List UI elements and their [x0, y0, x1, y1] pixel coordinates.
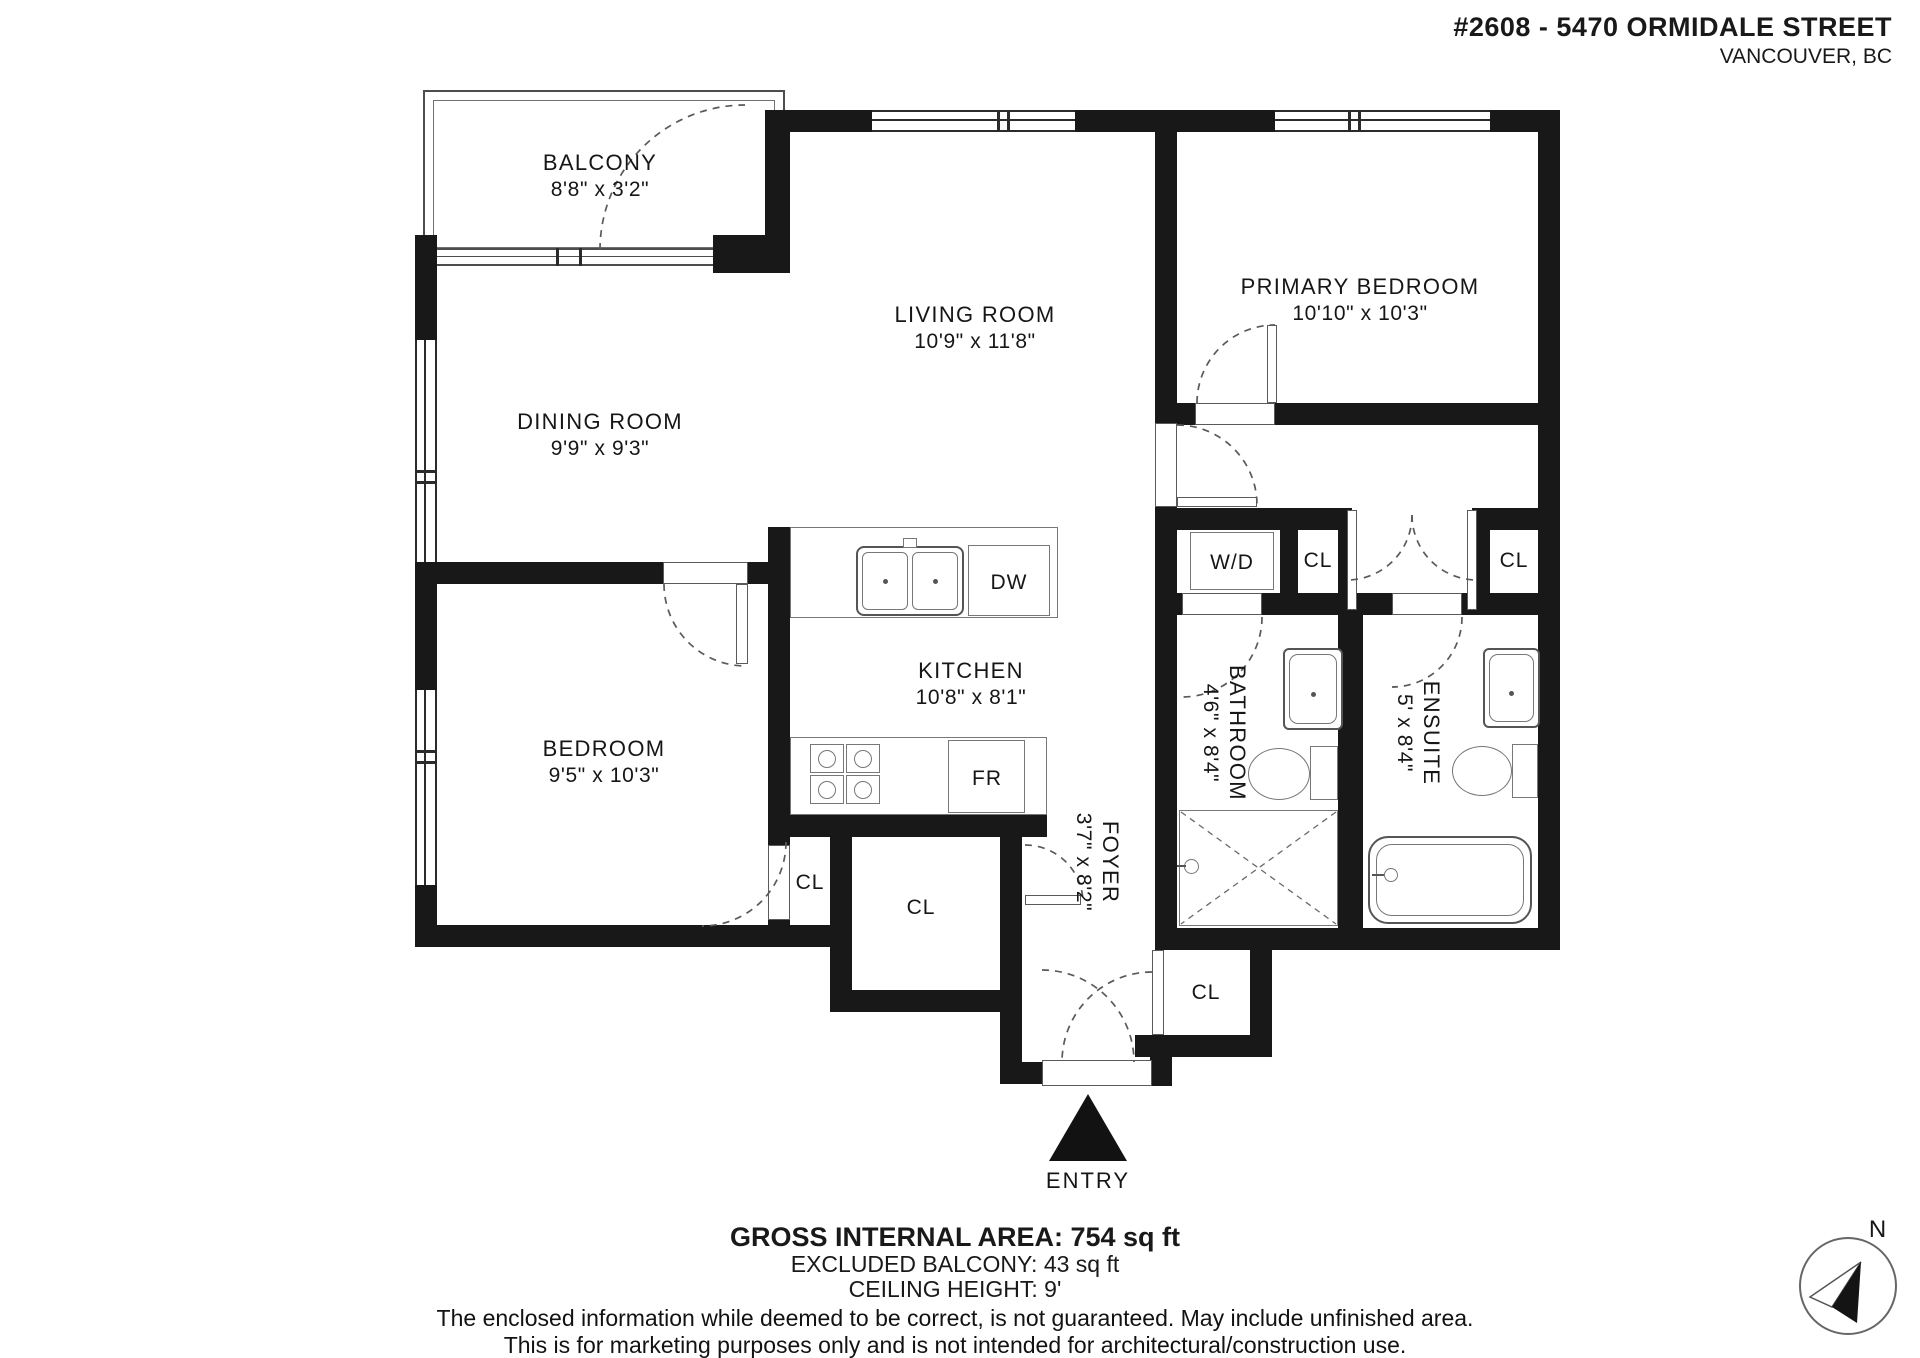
door-swing-arc — [1392, 617, 1462, 687]
door-opening — [1392, 593, 1462, 615]
toilet-bowl-icon — [1248, 748, 1310, 800]
wall-segment — [1155, 132, 1177, 425]
door-leaf — [736, 584, 748, 664]
wall-segment — [1150, 1055, 1172, 1086]
room-label-foyer: FOYER3'7" x 8'2" — [1071, 813, 1123, 911]
window-mullion — [415, 481, 437, 484]
wall-segment — [768, 815, 1047, 837]
wall-segment — [1177, 403, 1195, 425]
address-line2: VANCOUVER, BC — [1453, 45, 1892, 69]
floor-plan-page: #2608 - 5470 ORMIDALE STREET VANCOUVER, … — [0, 0, 1920, 1358]
shower-head-icon — [1184, 859, 1199, 874]
window-mullion — [1358, 110, 1361, 132]
sink-drain-icon — [933, 579, 938, 584]
wall-segment — [415, 925, 852, 947]
window-mullion — [1007, 110, 1010, 132]
window — [415, 340, 437, 562]
closet-label: CL — [796, 871, 825, 895]
door-opening — [1152, 950, 1164, 1035]
wall-segment — [415, 562, 663, 584]
window-mullion — [1348, 110, 1351, 132]
faucet-icon — [903, 538, 917, 548]
wall-segment — [830, 990, 1022, 1012]
closet-label: CL — [1192, 981, 1221, 1005]
room-label-primary: PRIMARY BEDROOM10'10" x 10'3" — [1241, 274, 1480, 326]
room-label-balcony: BALCONY8'8" x 3'2" — [543, 150, 657, 202]
dishwasher-label: DW — [991, 571, 1028, 595]
address-line1: #2608 - 5470 ORMIDALE STREET — [1453, 12, 1892, 43]
ceiling-height-text: CEILING HEIGHT: 9' — [849, 1276, 1062, 1303]
stove-burner-icon — [846, 744, 880, 773]
window — [1275, 110, 1490, 132]
wall-segment — [1338, 593, 1363, 950]
wall-segment — [1275, 403, 1560, 425]
wall-segment — [830, 837, 852, 1012]
door-leaf — [1267, 325, 1277, 403]
window — [415, 690, 437, 885]
closet-label: CL — [907, 896, 936, 920]
door-swing-arc — [1197, 325, 1275, 403]
toilet-tank-icon — [1310, 746, 1338, 800]
compass-icon — [1799, 1237, 1897, 1335]
sink-basin-icon — [1289, 654, 1337, 724]
bathtub-inner — [1376, 844, 1524, 916]
wall-segment — [1000, 1062, 1045, 1084]
door-opening — [1182, 593, 1262, 615]
wall-segment — [713, 235, 790, 273]
room-label-living: LIVING ROOM10'9" x 11'8" — [895, 302, 1056, 354]
sink-drain-icon — [883, 579, 888, 584]
tub-faucet-icon — [1384, 868, 1398, 882]
stove-burner-icon — [846, 775, 880, 804]
wall-segment — [768, 527, 790, 845]
door-opening — [768, 845, 790, 920]
north-label: N — [1869, 1216, 1887, 1244]
window — [872, 110, 1075, 132]
washer-dryer-label: W/D — [1210, 551, 1254, 575]
balcony-window-sill — [437, 248, 748, 266]
sink-drain-icon — [1311, 692, 1316, 697]
wall-segment — [748, 562, 768, 584]
room-label-bedroom: BEDROOM9'5" x 10'3" — [543, 736, 666, 788]
window-mullion — [415, 761, 437, 764]
wall-segment — [1155, 507, 1177, 950]
wall-segment — [1262, 593, 1392, 615]
closet-label: CL — [1500, 549, 1529, 573]
toilet-bowl-icon — [1452, 746, 1512, 796]
excluded-balcony-text: EXCLUDED BALCONY: 43 sq ft — [791, 1251, 1120, 1278]
gross-area-text: GROSS INTERNAL AREA: 754 sq ft — [730, 1222, 1180, 1253]
door-swing-arc — [1177, 425, 1257, 505]
room-label-ensuite: ENSUITE5' x 8'4" — [1392, 681, 1444, 785]
fridge-label: FR — [972, 767, 1002, 791]
wall-segment — [1075, 110, 1275, 132]
wall-segment — [1538, 110, 1560, 950]
toilet-tank-icon — [1512, 744, 1538, 798]
door-leaf — [1347, 510, 1357, 610]
window-mullion — [415, 470, 437, 473]
address-block: #2608 - 5470 ORMIDALE STREET VANCOUVER, … — [1453, 12, 1892, 69]
wall-segment — [1000, 837, 1022, 1012]
room-label-bathroom: BATHROOM4'6" x 8'4" — [1198, 665, 1250, 801]
door-opening — [1155, 423, 1177, 507]
entry-label: ENTRY — [1046, 1168, 1130, 1194]
entry-arrow-icon — [1049, 1094, 1127, 1161]
door-leaf — [1177, 497, 1257, 507]
door-opening — [663, 562, 748, 584]
entry-threshold — [1042, 1060, 1152, 1086]
stove-burner-icon — [810, 744, 844, 773]
shower-icon — [1179, 810, 1338, 926]
window-mullion — [997, 110, 1000, 132]
wall-segment — [1155, 593, 1182, 615]
room-label-kitchen: KITCHEN10'8" x 8'1" — [916, 658, 1027, 710]
window-mullion — [415, 750, 437, 753]
room-label-dining: DINING ROOM9'9" x 9'3" — [517, 409, 683, 461]
disclaimer-line1: The enclosed information while deemed to… — [437, 1305, 1474, 1332]
window-mullion — [579, 248, 582, 266]
stove-burner-icon — [810, 775, 844, 804]
door-swing-arc — [664, 584, 746, 666]
sink-basin-icon — [1489, 654, 1534, 722]
sink-drain-icon — [1509, 691, 1514, 696]
door-leaf — [1467, 510, 1477, 610]
door-swing-arc — [1042, 970, 1134, 1062]
closet-label: CL — [1304, 549, 1333, 573]
door-opening — [1195, 403, 1275, 425]
wall-segment — [1155, 508, 1352, 530]
wall-segment — [415, 235, 437, 340]
disclaimer-line2: This is for marketing purposes only and … — [504, 1332, 1407, 1358]
window-mullion — [556, 248, 559, 266]
